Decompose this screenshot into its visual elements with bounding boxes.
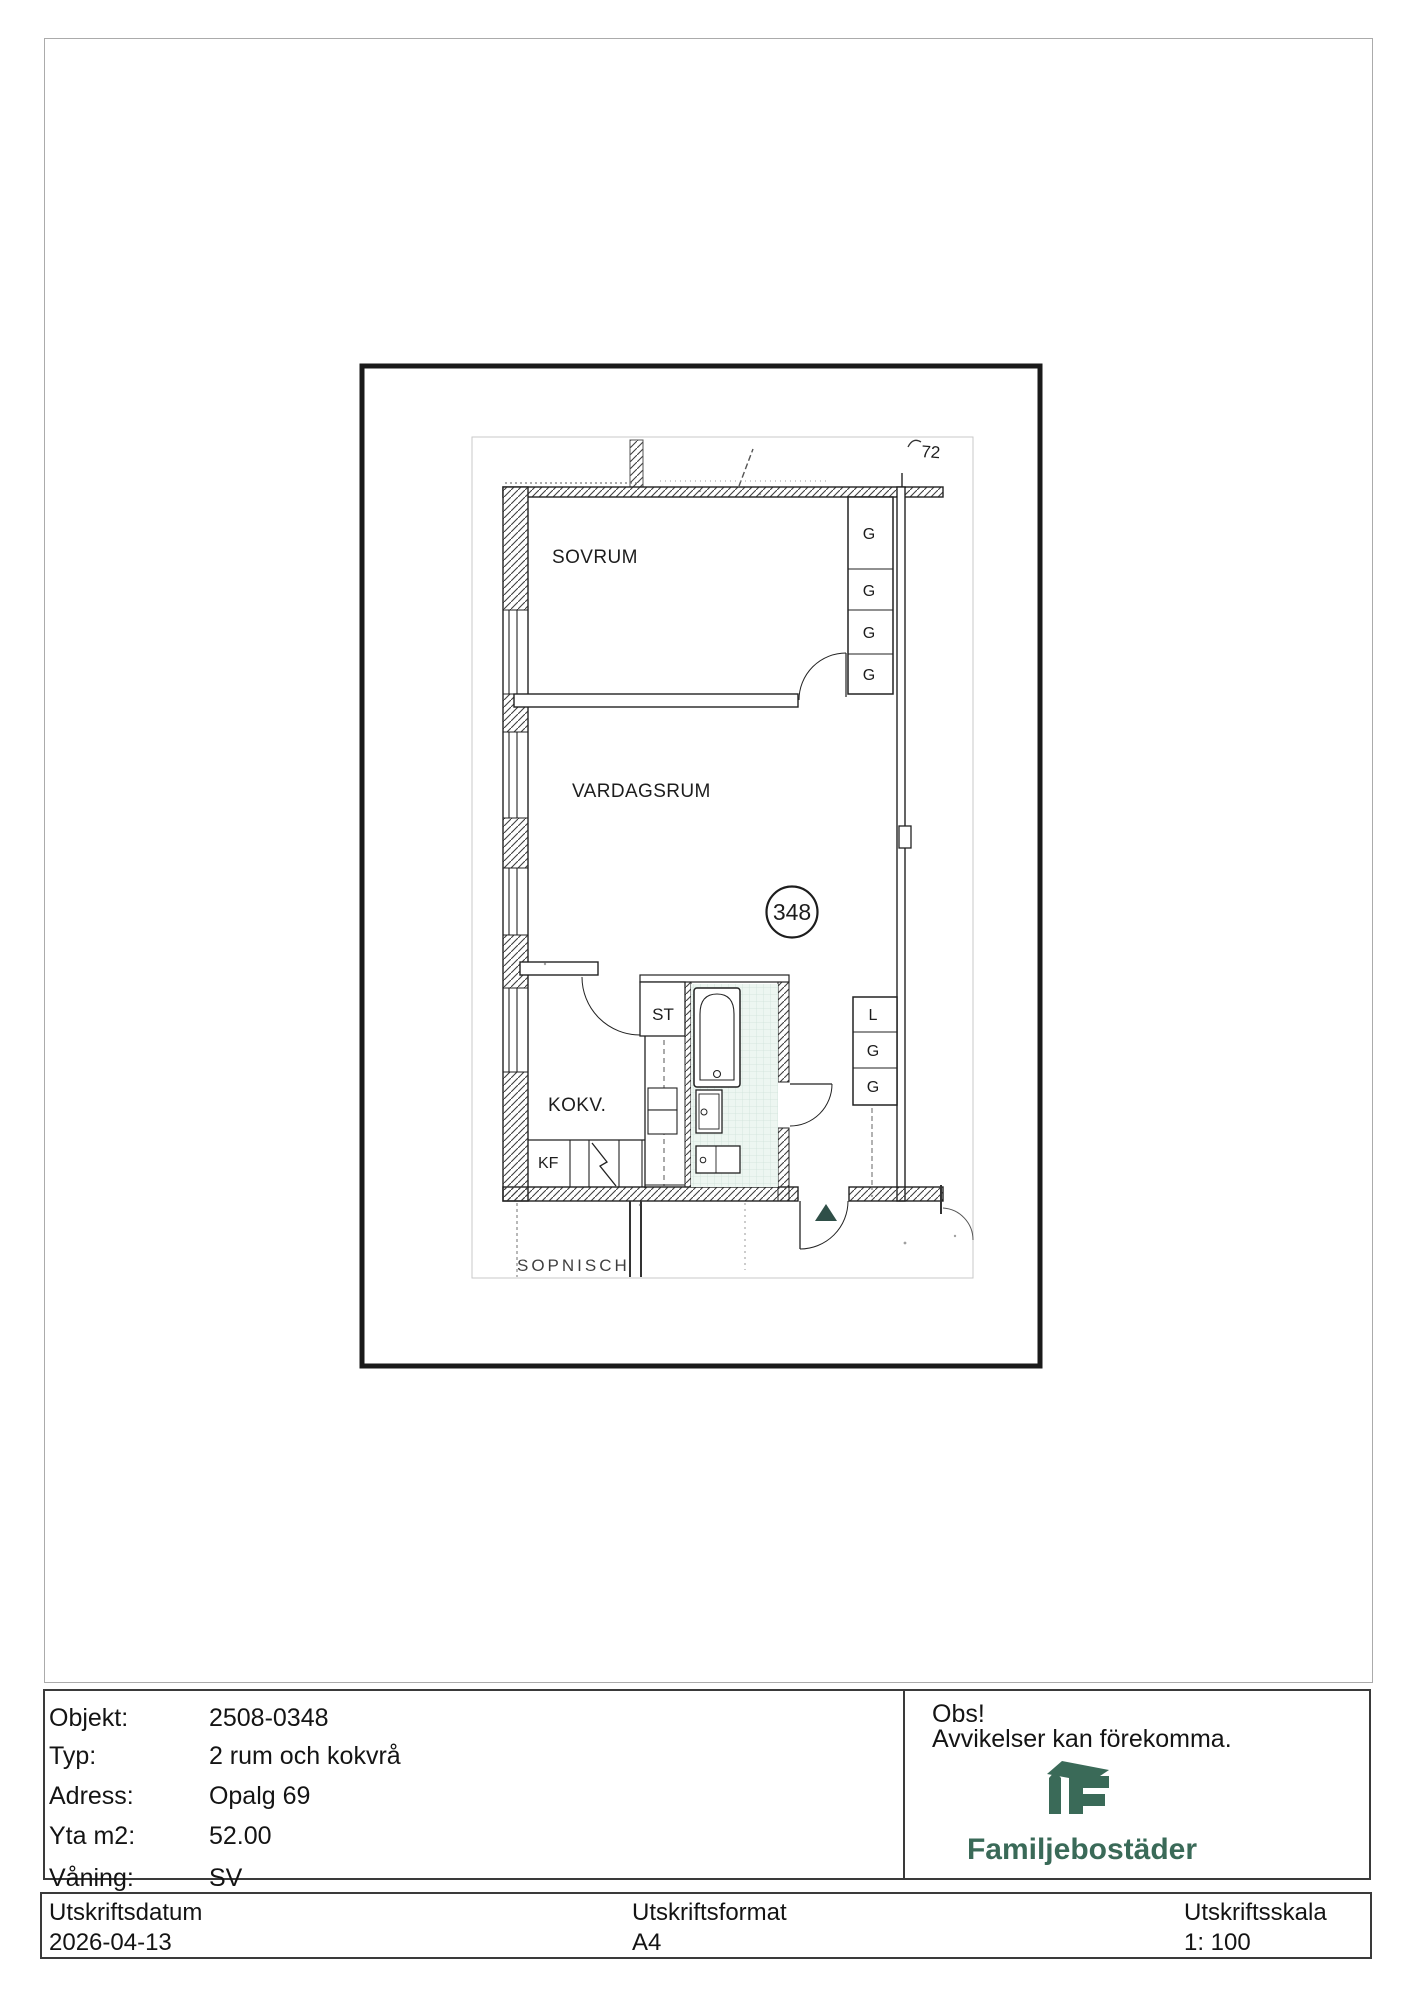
meta-row-yta: Yta m2: 52.00 xyxy=(49,1821,272,1851)
meta-row-vaning: Våning: SV xyxy=(49,1863,242,1893)
bathtub xyxy=(694,988,740,1087)
meta-value: 2 rum och kokvrå xyxy=(209,1742,401,1770)
unit-number-text: 348 xyxy=(773,899,811,925)
print-info-footer: Utskriftsdatum 2026-04-13 Utskriftsforma… xyxy=(40,1892,1372,1959)
floor-plan: 72 xyxy=(350,360,1060,1390)
meta-label: Typ: xyxy=(49,1741,202,1771)
meta-label: Adress: xyxy=(49,1781,202,1811)
footer-format-label: Utskriftsformat xyxy=(632,1899,787,1927)
unit-number-badge: 348 xyxy=(767,887,818,938)
meta-value: Opalg 69 xyxy=(209,1782,310,1810)
kitchen-sink-drainer xyxy=(648,1110,677,1134)
footer-date-value: 2026-04-13 xyxy=(49,1929,202,1957)
meta-label: Våning: xyxy=(49,1863,202,1893)
notice-body: Avvikelser kan förekomma. xyxy=(932,1724,1232,1754)
washing-machine xyxy=(696,1146,740,1173)
room-label-sovrum: SOVRUM xyxy=(552,547,638,568)
corner-note-text: 72 xyxy=(921,442,941,462)
room-label-kf: KF xyxy=(538,1155,559,1172)
familjebostader-logo-icon xyxy=(1047,1758,1111,1820)
meta-value: SV xyxy=(209,1864,242,1892)
meta-label: Objekt: xyxy=(49,1703,202,1733)
kitchen-sink xyxy=(648,1088,677,1110)
room-label-vardagsrum: VARDAGSRUM xyxy=(572,781,711,802)
drawing-frame xyxy=(362,366,1040,1366)
left-wall-pillars xyxy=(503,487,528,1201)
room-label-st: ST xyxy=(652,1005,674,1024)
bathroom xyxy=(691,984,778,1187)
familjebostader-wordmark: Familjebostäder xyxy=(957,1833,1207,1867)
footer-scale-value: 1: 100 xyxy=(1184,1929,1327,1957)
footer-date-label: Utskriftsdatum xyxy=(49,1899,202,1927)
meta-row-objekt: Objekt: 2508-0348 xyxy=(49,1703,329,1733)
metadata-table: Objekt: 2508-0348 Typ: 2 rum och kokvrå … xyxy=(43,1689,1371,1880)
footer-date-cell: Utskriftsdatum 2026-04-13 xyxy=(49,1899,202,1957)
wardrobe-label: G xyxy=(863,667,875,684)
footer-format-value: A4 xyxy=(632,1929,787,1957)
wardrobe-label: L xyxy=(869,1007,878,1024)
room-label-kokv: KOKV. xyxy=(548,1095,606,1116)
meta-label: Yta m2: xyxy=(49,1821,202,1851)
footer-scale-cell: Utskriftsskala 1: 100 xyxy=(1184,1899,1327,1957)
document-page: 72 xyxy=(0,0,1413,2000)
sink xyxy=(696,1090,722,1133)
wall-vent xyxy=(899,826,911,848)
wardrobe-label: G xyxy=(867,1079,879,1096)
meta-value: 2508-0348 xyxy=(209,1704,329,1732)
meta-value: 52.00 xyxy=(209,1822,272,1850)
meta-row-adress: Adress: Opalg 69 xyxy=(49,1781,310,1811)
meta-row-typ: Typ: 2 rum och kokvrå xyxy=(49,1741,401,1771)
footer-scale-label: Utskriftsskala xyxy=(1184,1899,1327,1927)
wardrobe-label: G xyxy=(863,625,875,642)
wardrobe-label: G xyxy=(863,526,875,543)
metadata-divider xyxy=(903,1691,905,1878)
wardrobe-label: G xyxy=(867,1043,879,1060)
footer-format-cell: Utskriftsformat A4 xyxy=(632,1899,787,1957)
bedroom-wardrobes: G G G G xyxy=(848,497,893,694)
sopnisch-label: SOPNISCH xyxy=(517,1256,630,1275)
wardrobe-label: G xyxy=(863,583,875,600)
